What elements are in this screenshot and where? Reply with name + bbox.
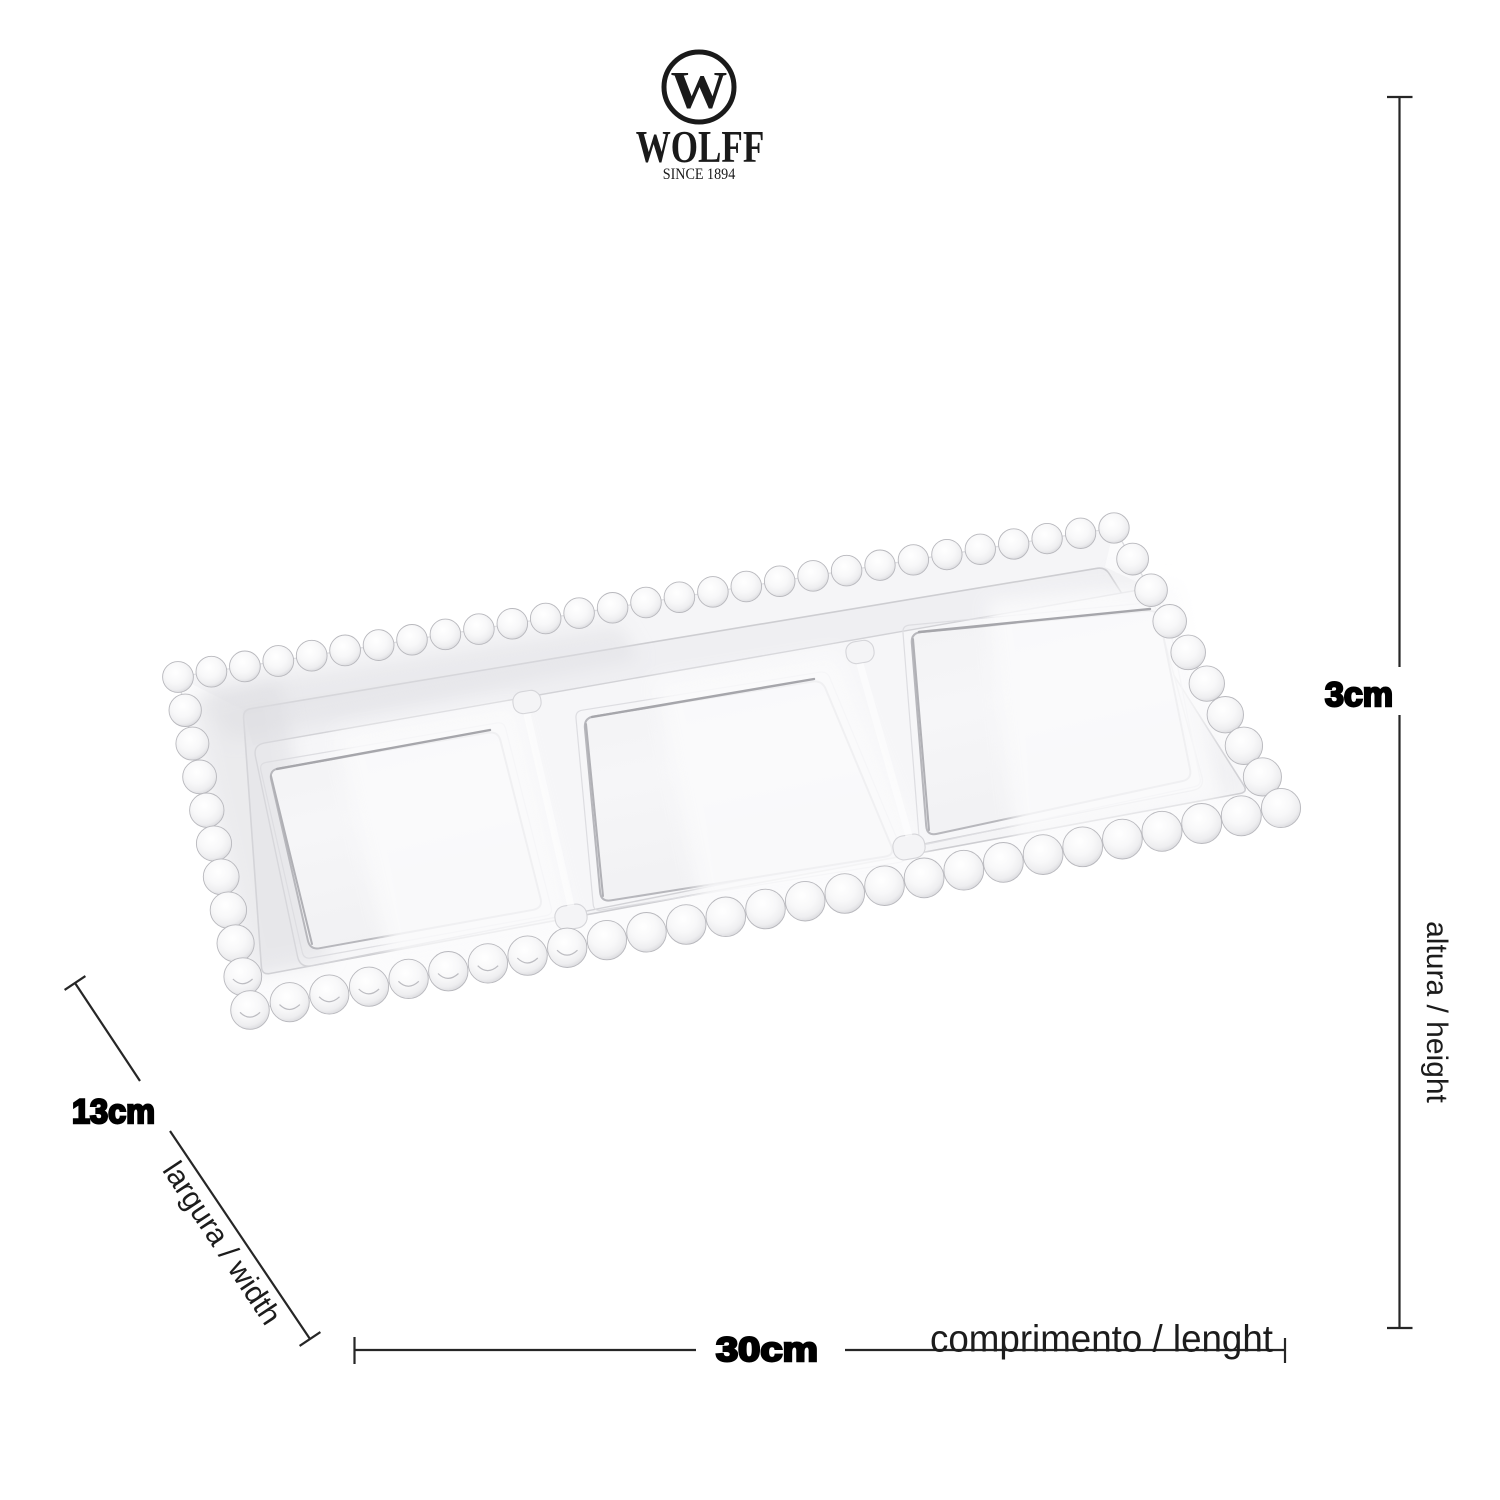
svg-text:comprimento / lenght: comprimento / lenght [930,1319,1273,1361]
svg-text:WOLFF: WOLFF [636,121,765,172]
svg-text:largura / width: largura / width [156,1156,288,1331]
svg-text:3cm: 3cm [1325,676,1393,714]
svg-text:altura / height: altura / height [1420,921,1453,1103]
svg-text:30cm: 30cm [716,1331,818,1369]
svg-text:SINCE 1894: SINCE 1894 [663,166,736,183]
svg-text:W: W [671,60,728,119]
svg-text:13cm: 13cm [72,1093,155,1131]
